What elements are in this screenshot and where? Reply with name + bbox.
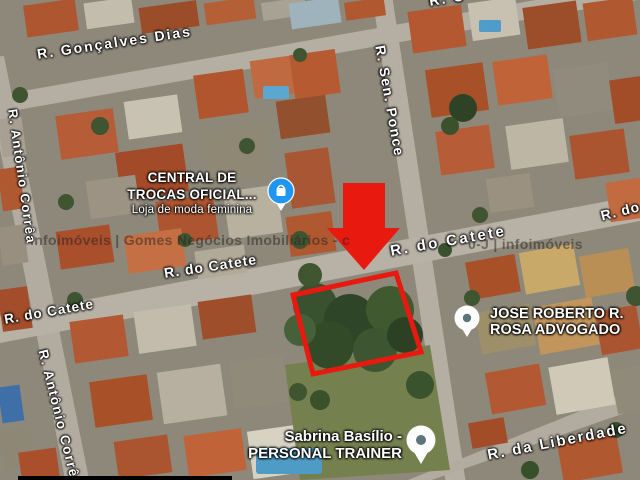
place-pin-icon <box>453 305 481 339</box>
shopping-bag-pin-icon <box>266 177 296 213</box>
place-name-line1: Sabrina Basílio - <box>230 428 402 445</box>
place-name-line2: TROCAS OFICIAL... <box>116 186 268 203</box>
listing-map-image[interactable]: infoimóveis | Gomes Negócios Imobiliário… <box>0 0 640 480</box>
place-name-line2: ROSA ADVOGADO <box>490 322 623 338</box>
place-pin-icon <box>404 425 438 467</box>
place-label-jose-roberto: JOSE ROBERTO R. ROSA ADVOGADO <box>490 306 623 338</box>
place-name-line1: CENTRAL DE <box>116 169 268 186</box>
place-label-central-de-trocas: CENTRAL DE TROCAS OFICIAL... Loja de mod… <box>116 169 268 217</box>
place-name-line2: PERSONAL TRAINER <box>230 445 402 462</box>
place-label-sabrina-basilio: Sabrina Basílio - PERSONAL TRAINER <box>230 428 402 462</box>
watermark-left: infoimóveis | Gomes Negócios Imobiliário… <box>30 232 350 248</box>
place-name-line1: JOSE ROBERTO R. <box>490 306 623 322</box>
place-category: Loja de moda feminina <box>116 203 268 217</box>
photo-letterbox-bar <box>18 476 232 480</box>
